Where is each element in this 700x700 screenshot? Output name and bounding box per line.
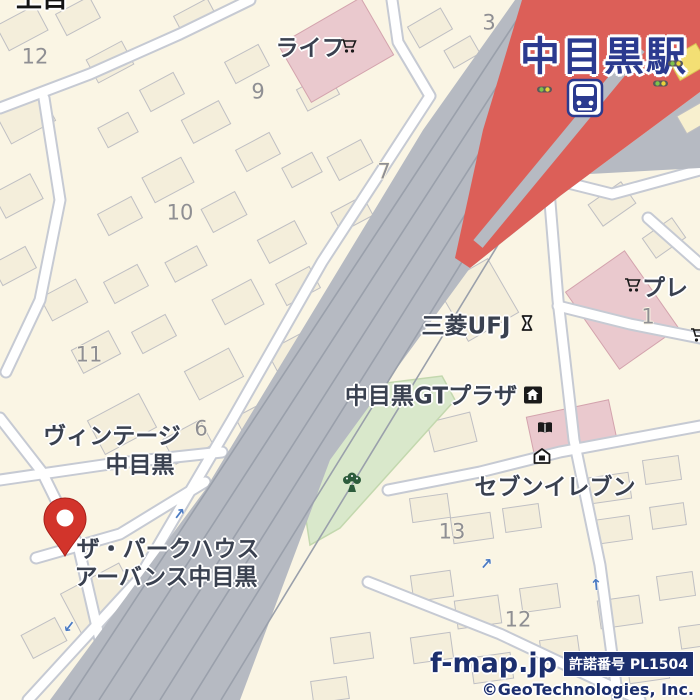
license-badge: 許諾番号 PL1504: [563, 651, 694, 677]
copyright-text: ©GeoTechnologies, Inc.: [430, 680, 694, 699]
map-viewport[interactable]: 上目 中目黒駅 ライフ 三菱UFJ 中目黒GTプラザ セブンイレブン ヴィンテー…: [0, 0, 700, 700]
basemap-canvas: [0, 0, 700, 700]
fmap-brand: f-map.jp: [430, 648, 557, 679]
map-attribution: f-map.jp 許諾番号 PL1504 ©GeoTechnologies, I…: [430, 648, 694, 699]
